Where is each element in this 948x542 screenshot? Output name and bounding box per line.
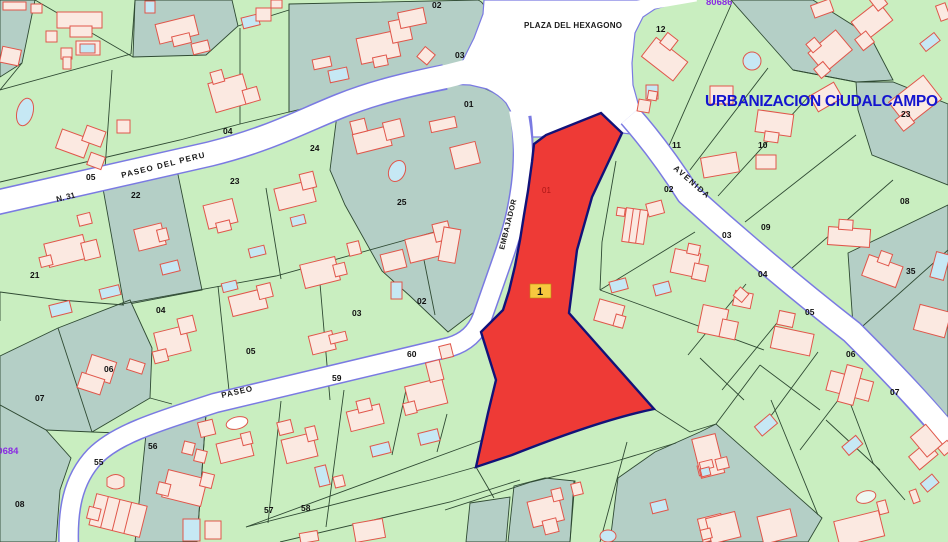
svg-text:04: 04 <box>156 305 166 315</box>
svg-text:URBANIZACION CIUDALCAMPO: URBANIZACION CIUDALCAMPO <box>705 93 938 110</box>
svg-text:58: 58 <box>301 503 311 513</box>
svg-text:01: 01 <box>464 99 474 109</box>
svg-text:05: 05 <box>86 172 96 182</box>
svg-text:80686: 80686 <box>706 0 732 8</box>
svg-text:1: 1 <box>537 286 543 298</box>
svg-text:05: 05 <box>246 346 256 356</box>
svg-text:60: 60 <box>407 349 417 359</box>
svg-text:23: 23 <box>901 109 911 119</box>
svg-text:12: 12 <box>656 24 666 34</box>
svg-text:02: 02 <box>417 296 427 306</box>
svg-text:06: 06 <box>104 364 114 374</box>
svg-text:08: 08 <box>15 499 25 509</box>
svg-text:04: 04 <box>758 269 768 279</box>
svg-text:57: 57 <box>264 505 274 515</box>
svg-text:07: 07 <box>890 387 900 397</box>
svg-text:10: 10 <box>758 140 768 150</box>
svg-text:56: 56 <box>148 441 158 451</box>
svg-text:06: 06 <box>846 349 856 359</box>
svg-text:80684: 80684 <box>0 446 19 457</box>
svg-text:PLAZA DEL HEXAGONO: PLAZA DEL HEXAGONO <box>524 21 622 30</box>
svg-text:03: 03 <box>352 308 362 318</box>
svg-text:11: 11 <box>672 140 681 150</box>
svg-text:21: 21 <box>30 270 40 280</box>
svg-text:02: 02 <box>432 0 442 10</box>
svg-text:23: 23 <box>230 176 240 186</box>
svg-text:22: 22 <box>131 190 141 200</box>
svg-text:08: 08 <box>900 196 910 206</box>
svg-text:55: 55 <box>94 457 104 467</box>
svg-text:03: 03 <box>455 50 465 60</box>
svg-text:04: 04 <box>223 126 233 136</box>
svg-text:59: 59 <box>332 373 342 383</box>
svg-text:05: 05 <box>805 307 815 317</box>
svg-text:03: 03 <box>722 230 732 240</box>
svg-text:25: 25 <box>397 197 407 207</box>
svg-text:09: 09 <box>761 222 771 232</box>
svg-text:01: 01 <box>542 186 551 195</box>
svg-text:24: 24 <box>310 143 320 153</box>
svg-text:02: 02 <box>664 184 674 194</box>
svg-text:35: 35 <box>906 266 916 276</box>
svg-text:07: 07 <box>35 393 45 403</box>
